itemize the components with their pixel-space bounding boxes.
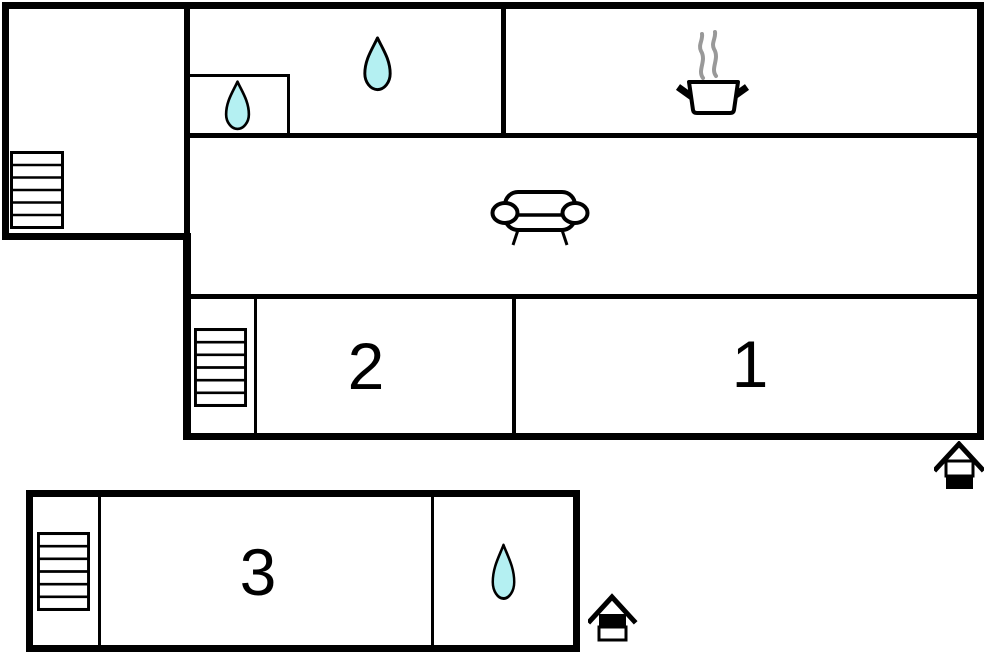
outer-wall-right	[977, 2, 984, 440]
room-2-label: 2	[348, 333, 385, 399]
annex-wall-bottom	[26, 645, 580, 652]
water-drop-icon	[220, 79, 255, 132]
sofa-icon	[490, 188, 590, 248]
stairs-icon	[10, 151, 64, 229]
sofa-armrest-right	[563, 203, 588, 223]
room-3-label: 3	[240, 539, 277, 605]
house-body-lower	[599, 627, 626, 640]
entrance-house-icon	[588, 593, 638, 643]
room-1-label: 1	[732, 331, 769, 397]
stairs-icon	[37, 532, 90, 611]
entrance-house-icon	[934, 441, 984, 491]
annex-wall-right	[573, 490, 580, 652]
stairs-shape	[12, 153, 63, 228]
steam-line-icon	[700, 34, 703, 78]
annex-wall-left	[26, 490, 33, 652]
outer-wall-top	[2, 2, 984, 9]
sofa-armrest-left	[493, 203, 518, 223]
house-body-upper	[946, 461, 973, 476]
annex-wall-top	[26, 490, 580, 497]
sofa-leg-right	[562, 230, 567, 245]
water-drop-icon	[358, 35, 397, 93]
water-drop-shape	[493, 545, 514, 599]
steam-line-icon	[713, 32, 716, 76]
water-drop-icon	[487, 542, 520, 602]
stairs-icon	[194, 328, 247, 407]
outer-wall-bottom	[183, 433, 984, 440]
stairs-shape	[38, 534, 88, 610]
cooking-pot-icon	[670, 30, 755, 120]
outer-wall-entry-bottom	[2, 233, 190, 240]
stairs-shape	[195, 330, 245, 406]
water-drop-shape	[365, 38, 390, 90]
floor-plan-canvas: 1 2 3	[0, 0, 986, 652]
room-bedroom-2	[257, 299, 512, 433]
outer-wall-left	[2, 2, 9, 240]
pot-body	[689, 82, 738, 113]
house-body-lower	[946, 475, 973, 489]
sofa-leg-left	[513, 230, 518, 245]
water-drop-shape	[226, 82, 249, 129]
